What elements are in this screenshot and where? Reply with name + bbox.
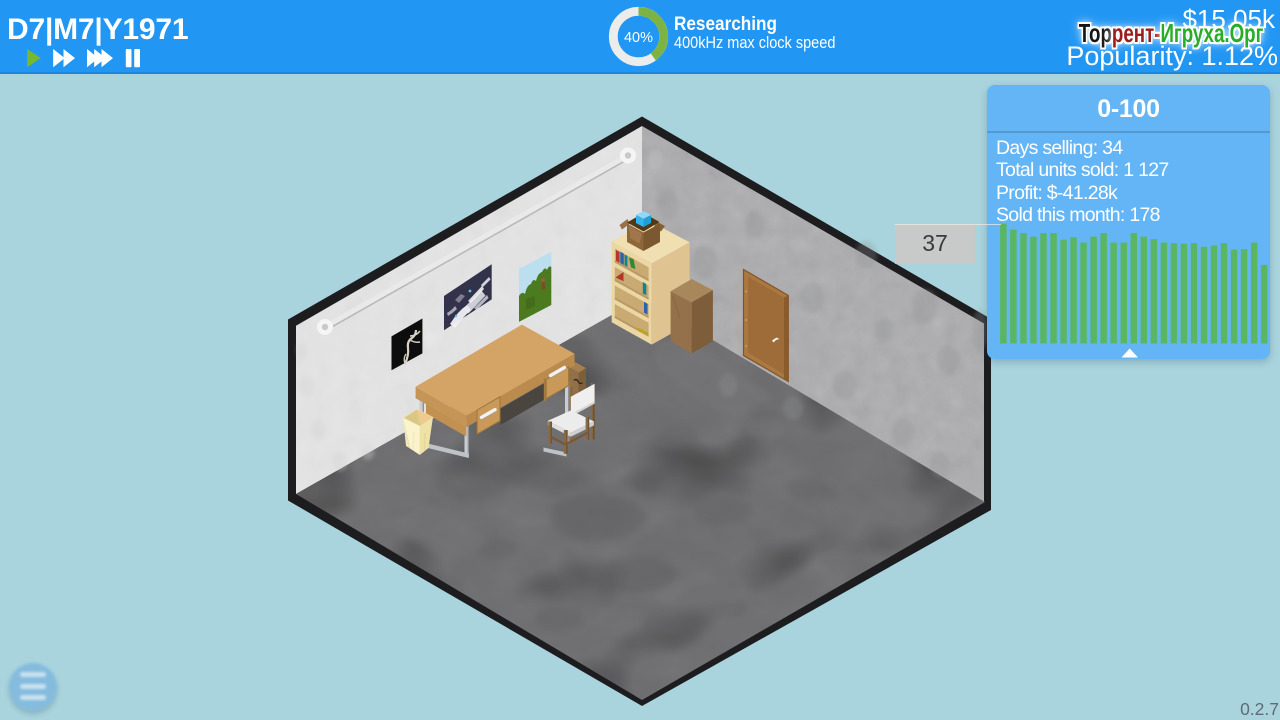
svg-text:40%: 40% bbox=[624, 30, 653, 46]
